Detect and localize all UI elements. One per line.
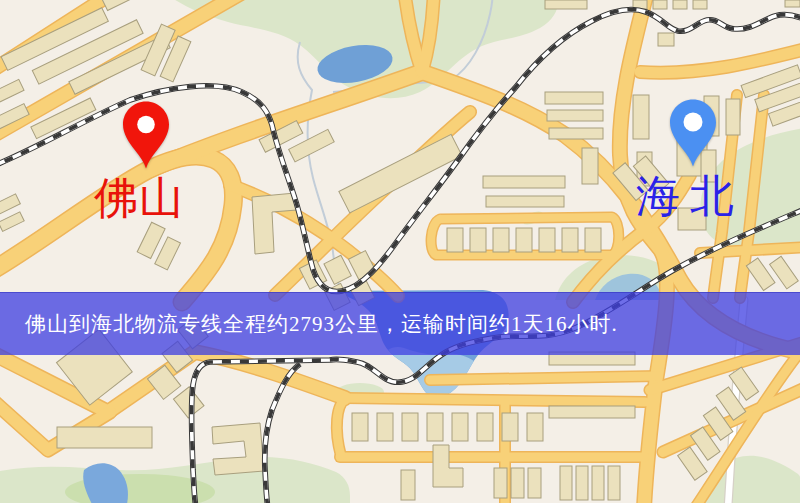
origin-red-location-pin-icon[interactable] xyxy=(121,100,171,170)
destination-label: 海北 xyxy=(636,174,744,218)
pin-hole xyxy=(137,116,155,134)
destination-blue-location-pin-icon[interactable] xyxy=(668,98,718,168)
route-info-text: 佛山到海北物流专线全程约2793公里，运输时间约1天16小时. xyxy=(25,310,618,338)
map-view[interactable]: 佛山 海北 佛山到海北物流专线全程约2793公里，运输时间约1天16小时. xyxy=(0,0,800,503)
pin-body xyxy=(123,102,169,169)
map-background xyxy=(0,0,800,503)
origin-label: 佛山 xyxy=(94,176,184,220)
pin-body xyxy=(670,100,716,167)
pin-hole xyxy=(684,113,703,132)
route-info-banner: 佛山到海北物流专线全程约2793公里，运输时间约1天16小时. xyxy=(0,292,800,355)
